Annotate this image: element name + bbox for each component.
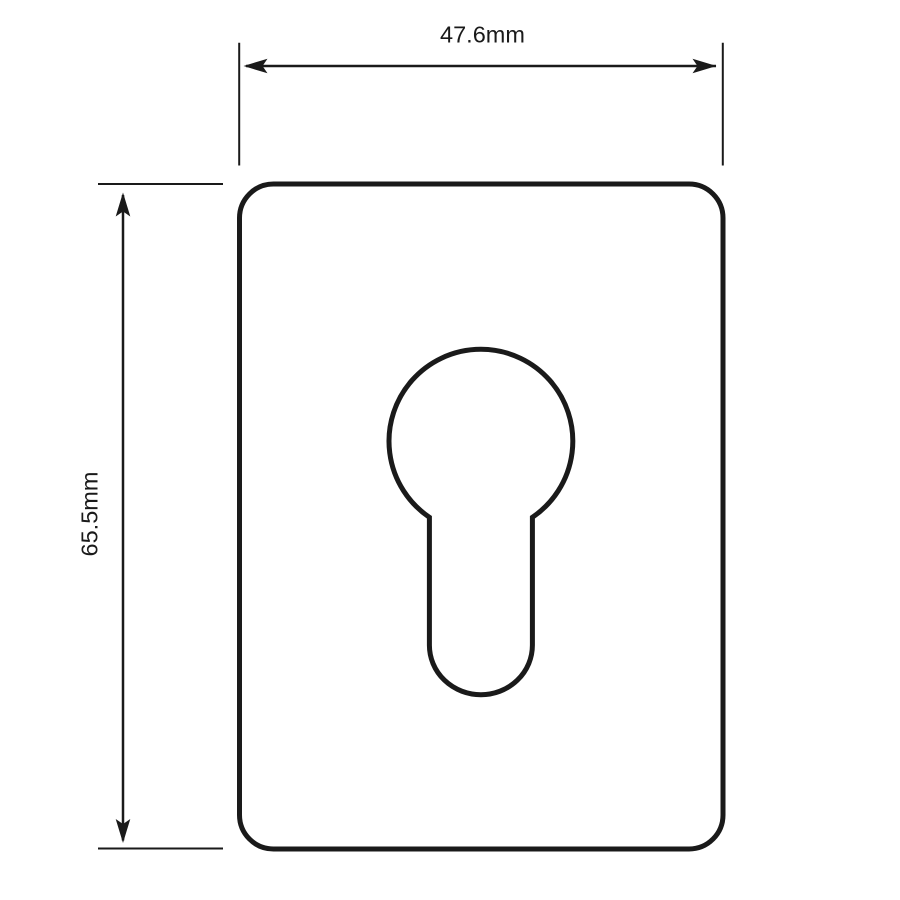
svg-text:47.6mm: 47.6mm [440, 22, 525, 48]
svg-text:65.5mm: 65.5mm [76, 472, 102, 557]
